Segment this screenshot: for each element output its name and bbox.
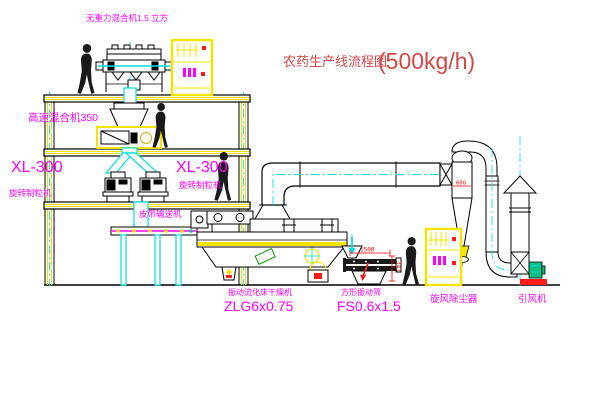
dim-screen-outlet-height: 341 [395, 261, 402, 272]
indicator-light [452, 237, 456, 241]
dim-cyclone-diameter: 600 [456, 181, 466, 187]
high-speed-mixer [97, 103, 161, 148]
label-belt-conveyor: 皮带输送机 [139, 209, 182, 219]
process-flow-diagram: 无重力混合机1.5 立方 农药生产线流程图 (500kg/h) 高速混合机350… [0, 0, 600, 403]
gauge-icons [433, 256, 446, 265]
control-cabinet-right [426, 229, 461, 285]
label-screen-model: FS0.6x1.5 [337, 298, 401, 314]
dryer-exhaust-hood [255, 205, 290, 219]
indicator-light [201, 72, 205, 76]
belt-conveyor [111, 227, 197, 285]
roof-slab [44, 95, 250, 102]
diagram-title-zh: 农药生产线流程图 [283, 54, 387, 69]
label-granulator-left-model: XL-300 [11, 159, 63, 176]
cyclone-inlet-valve [440, 164, 452, 185]
fluid-bed-dryer [191, 205, 347, 282]
label-cyclone: 旋风除尘器 [430, 293, 478, 305]
rotary-granulator-right [138, 172, 168, 202]
label-dryer-name: 振动流化床干燥机 [228, 287, 292, 297]
control-cabinet-top [172, 40, 212, 95]
label-granulator-left-name: 旋转制粒机 [9, 188, 52, 198]
indicator-light [452, 261, 456, 265]
label-fan: 引风机 [518, 293, 547, 305]
floor3-slab [44, 149, 250, 156]
screen-base [352, 271, 386, 284]
diagram-title-capacity: (500kg/h) [378, 48, 475, 74]
person-figure [77, 44, 94, 94]
label-granulator-mid-name: 旋转制粒机 [179, 180, 222, 190]
indicator-light [202, 46, 206, 50]
gauge-icons [183, 68, 196, 77]
stack-pipe [511, 193, 529, 252]
vibrating-screen [342, 234, 401, 284]
no-gravity-mixer [96, 45, 173, 92]
exhaust-duct [259, 162, 452, 206]
label-no-gravity-mixer: 无重力混合机1.5 立方 [86, 13, 168, 23]
dryer-mount-left [222, 267, 236, 280]
stack-rain-cap [504, 176, 536, 193]
fan-base [520, 279, 547, 285]
person-figure [402, 237, 419, 285]
dim-screen-length: 1500 [360, 247, 375, 254]
stack-support-frame [511, 252, 529, 274]
label-high-speed-mixer: 高速混合机350 [28, 111, 98, 124]
label-dryer-model: ZLG6x0.75 [224, 298, 293, 314]
label-granulator-mid-model: XL-300 [176, 159, 228, 176]
fan-motor [529, 262, 542, 278]
rotary-granulator-left [103, 172, 133, 202]
label-screen-name: 方形振动筛 [341, 287, 381, 297]
